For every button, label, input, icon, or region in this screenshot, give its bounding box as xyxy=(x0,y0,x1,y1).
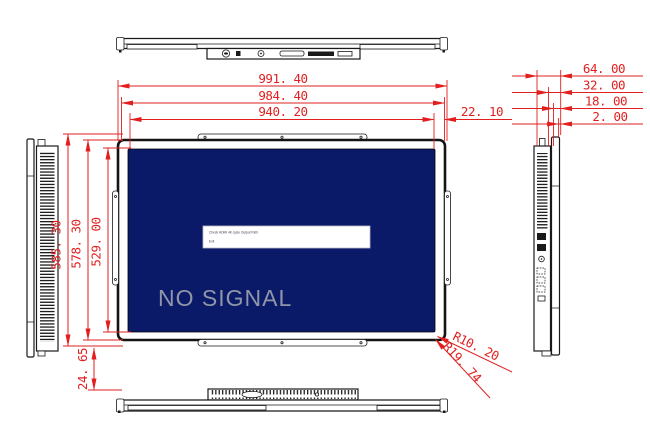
right-view-hdmi-port-icon xyxy=(537,233,546,240)
dim-border-bottom: 24. 65 xyxy=(75,348,90,390)
top-view-left-endcap xyxy=(117,38,125,51)
right-view-bottom-foot xyxy=(542,351,551,356)
bottom-view-left-endcap xyxy=(117,399,125,412)
dim-depth-body: 32. 00 xyxy=(583,78,625,93)
dim-height-active: 529. 00 xyxy=(89,217,104,266)
dim-depth-glass: 2. 00 xyxy=(592,109,627,124)
front-view: Check HDMI 4K cycle Output Path Exit NO … xyxy=(113,134,451,346)
technical-drawing-monitor: Check HDMI 4K cycle Output Path Exit NO … xyxy=(0,0,650,438)
top-view-right-endcap xyxy=(440,38,448,51)
round-port-pin xyxy=(260,53,262,55)
right-view-hdmi2-port-icon xyxy=(537,244,546,251)
hdmi-port-icon xyxy=(308,52,334,57)
right-view-panel-bar xyxy=(552,137,560,355)
dim-depth-overall: 64. 00 xyxy=(583,61,625,76)
right-view-vent-grille xyxy=(537,153,548,229)
osd-dialog-line1: Check HDMI 4K cycle Output Path xyxy=(209,231,258,235)
bottom-view-left-bracket xyxy=(128,406,266,411)
power-inlet-pin xyxy=(224,52,228,54)
bottom-left-foot xyxy=(118,411,121,414)
bottom-view xyxy=(117,389,448,413)
left-view-bottom-foot xyxy=(38,351,45,356)
top-view-left-bracket xyxy=(127,45,197,50)
osd-dialog xyxy=(203,226,370,248)
bottom-view-right-bracket xyxy=(377,406,440,411)
dim-border-right: 22. 10 xyxy=(461,104,503,119)
front-right-mount-bracket xyxy=(445,191,451,285)
drawing-canvas: Check HDMI 4K cycle Output Path Exit NO … xyxy=(0,0,650,438)
right-view-top-knob xyxy=(540,139,546,147)
front-left-mount-bracket xyxy=(113,191,119,285)
top-view xyxy=(117,38,448,60)
osd-dialog-line2: Exit xyxy=(209,240,214,244)
dim-width-active: 940. 20 xyxy=(258,104,307,119)
right-view-jack-pin xyxy=(541,258,543,260)
left-view-panel-bar xyxy=(27,139,34,357)
dim-width-frame: 984. 40 xyxy=(258,88,307,103)
dim-depth-inner: 18. 00 xyxy=(585,94,627,109)
bottom-right-foot xyxy=(443,411,446,414)
bottom-view-oval-cutout xyxy=(242,391,262,397)
dim-height-frame: 578. 30 xyxy=(69,219,84,268)
dim-height-overall: 585. 30 xyxy=(49,220,64,269)
bottom-view-vent-slots xyxy=(210,390,356,399)
power-switch-icon xyxy=(236,51,241,56)
bottom-view-right-endcap xyxy=(440,399,448,412)
right-side-view xyxy=(534,137,560,356)
dim-width-overall: 991. 40 xyxy=(258,71,307,86)
no-signal-label: NO SIGNAL xyxy=(158,285,292,311)
front-bottom-mount-bracket xyxy=(198,340,367,347)
bottom-view-hole xyxy=(315,393,318,396)
top-left-foot xyxy=(119,50,122,53)
top-view-right-bracket xyxy=(360,45,435,50)
top-right-foot xyxy=(443,50,446,53)
